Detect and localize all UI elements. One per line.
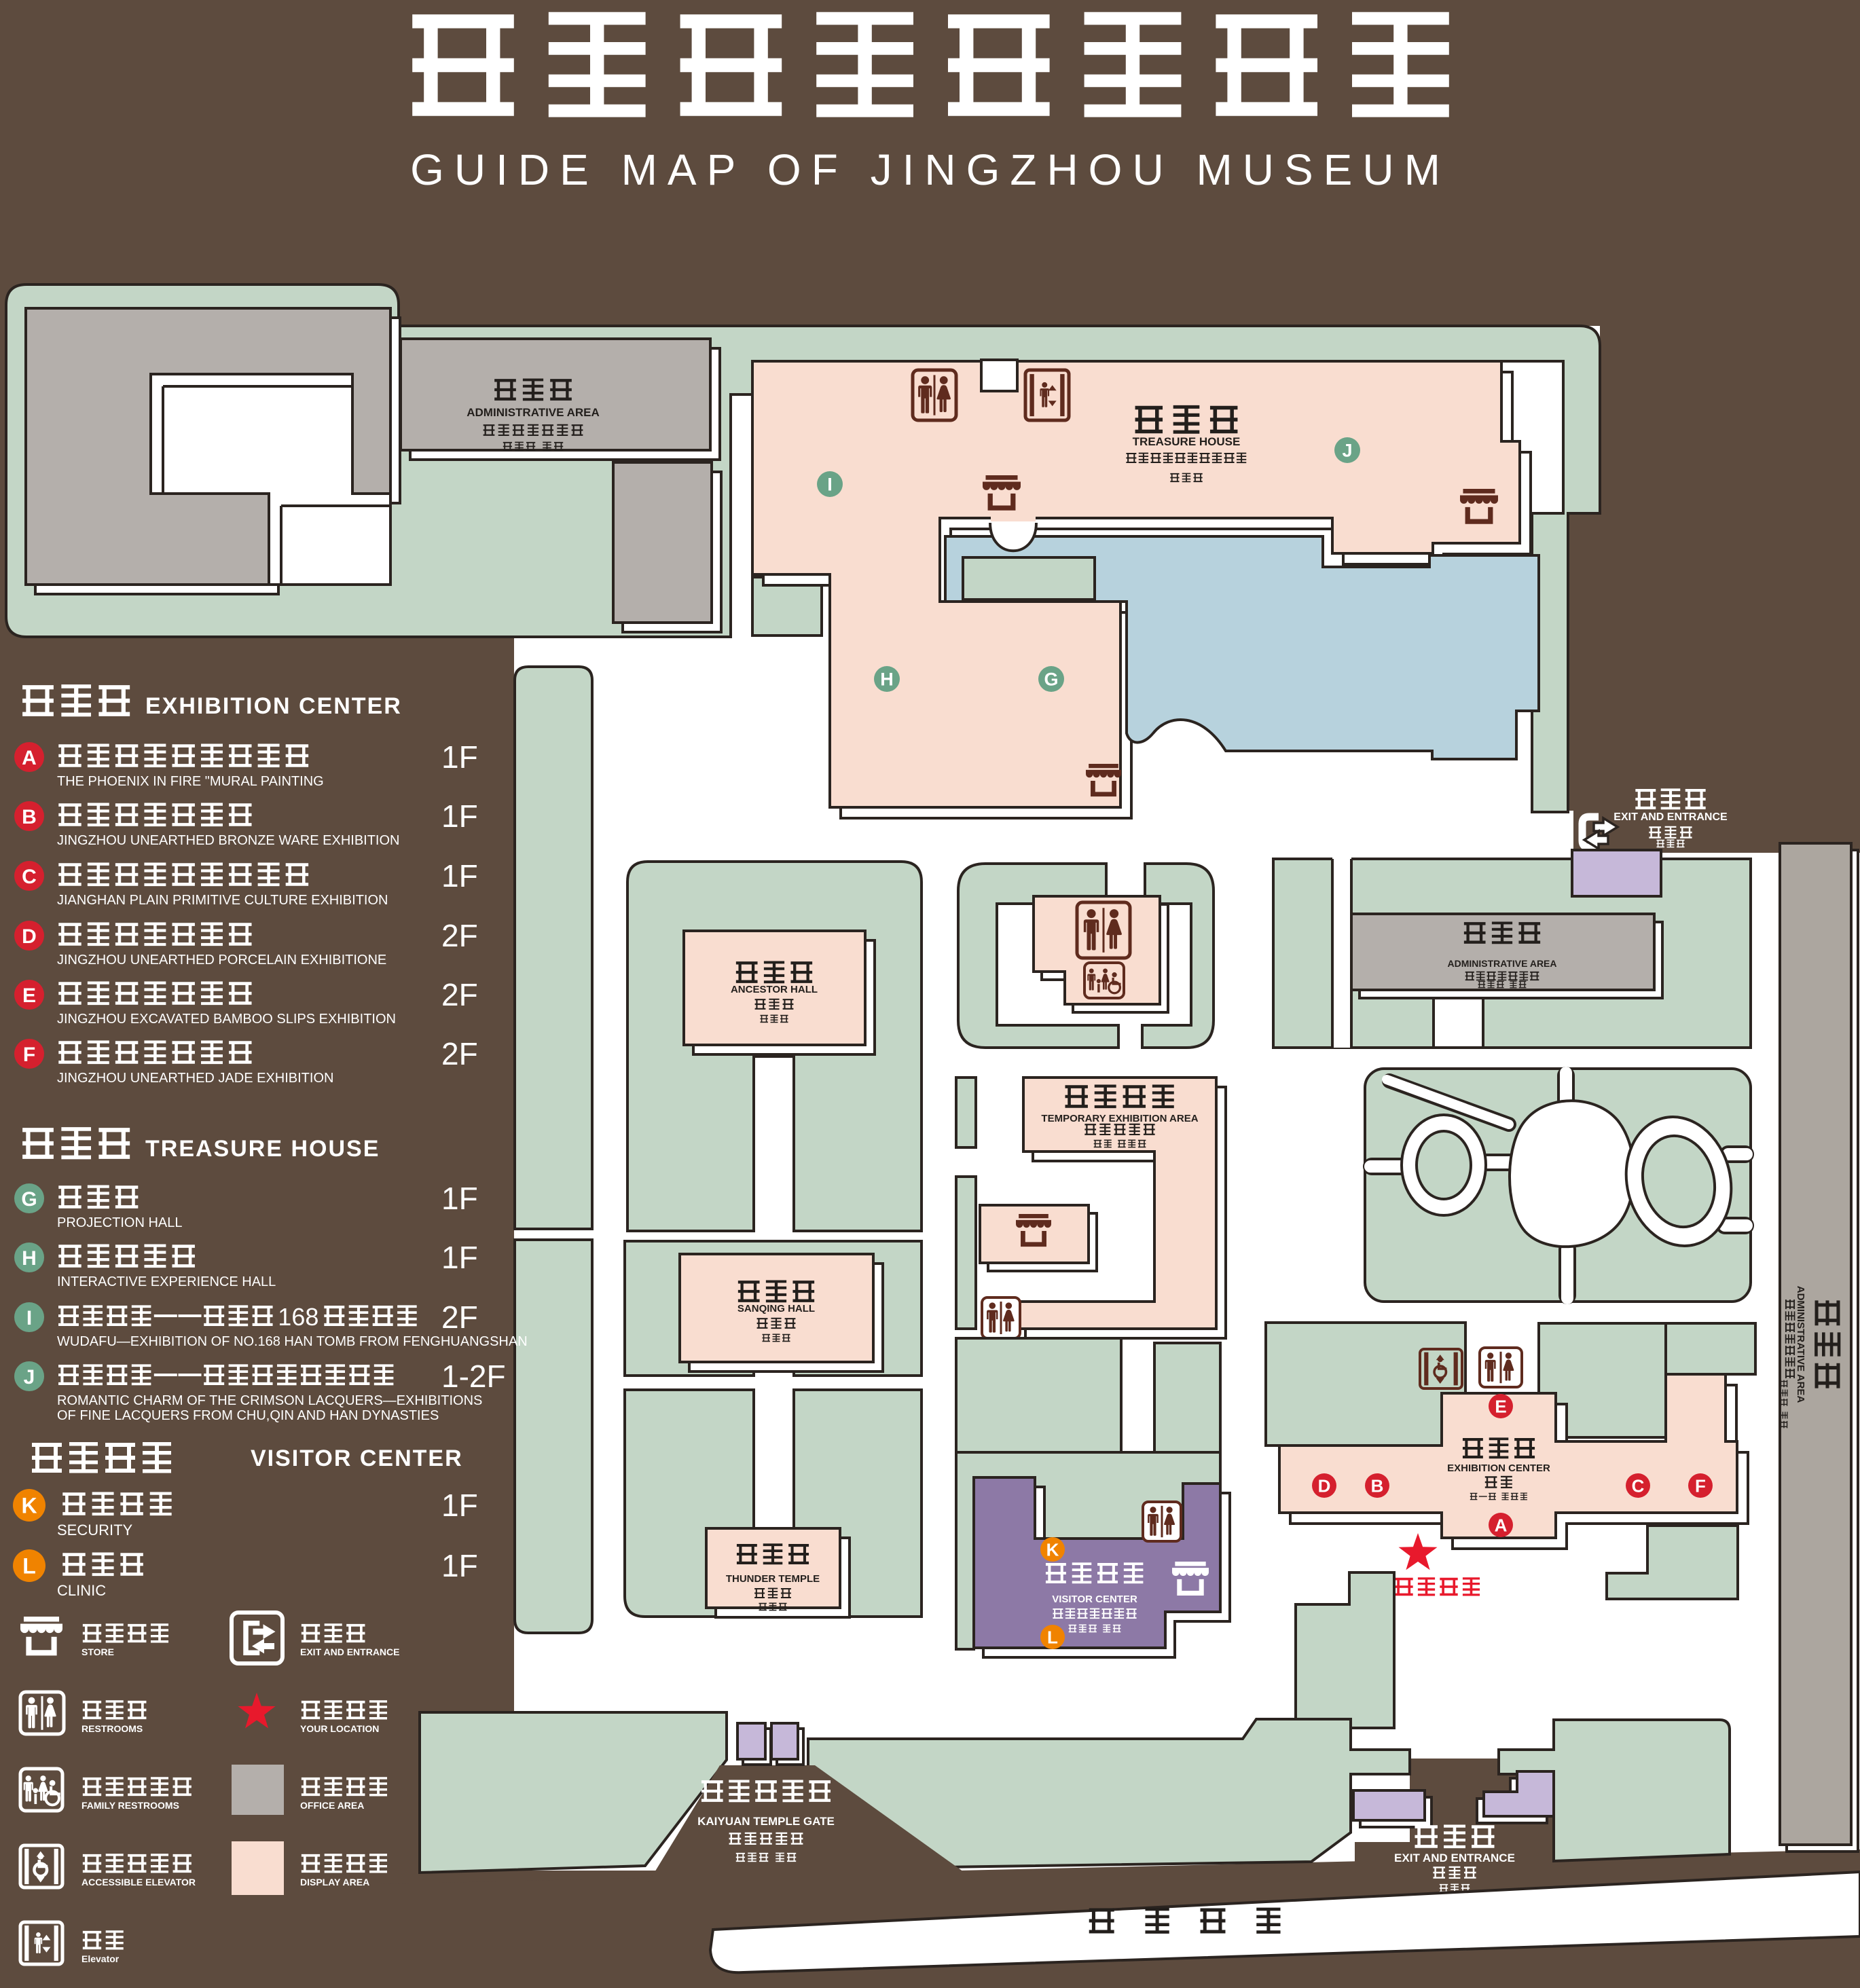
svg-text:RESTROOMS: RESTROOMS (81, 1723, 143, 1734)
svg-text:K: K (21, 1494, 37, 1518)
svg-text:JINGZHOU UNEARTHED PORCELAIN E: JINGZHOU UNEARTHED PORCELAIN EXHIBITIONE (57, 953, 386, 968)
svg-text:I: I (827, 475, 833, 495)
svg-text:G: G (21, 1188, 37, 1211)
svg-text:TEMPORARY EXHIBITION AREA: TEMPORARY EXHIBITION AREA (1041, 1113, 1198, 1124)
svg-text:TREASURE HOUSE: TREASURE HOUSE (1133, 435, 1241, 448)
svg-text:2F: 2F (441, 918, 478, 953)
svg-text:YOUR LOCATION: YOUR LOCATION (300, 1723, 379, 1734)
svg-text:ADMINISTRATIVE AREA: ADMINISTRATIVE AREA (467, 406, 600, 419)
svg-text:WUDAFU—EXHIBITION OF NO.168 HA: WUDAFU—EXHIBITION OF NO.168 HAN TOMB FRO… (57, 1334, 528, 1349)
svg-text:1F: 1F (441, 1488, 478, 1523)
svg-text:E: E (22, 984, 36, 1007)
svg-text:J: J (24, 1366, 35, 1388)
svg-text:EXIT AND ENTRANCE: EXIT AND ENTRANCE (300, 1646, 400, 1657)
svg-text:2F: 2F (441, 1300, 478, 1335)
svg-text:OFFICE AREA: OFFICE AREA (300, 1800, 364, 1811)
svg-text:EXHIBITION CENTER: EXHIBITION CENTER (145, 693, 402, 719)
svg-text:EXHIBITION CENTER: EXHIBITION CENTER (1447, 1462, 1550, 1474)
svg-text:TREASURE HOUSE: TREASURE HOUSE (145, 1136, 380, 1162)
svg-text:1-2F: 1-2F (441, 1359, 506, 1394)
svg-text:I: I (26, 1307, 32, 1329)
svg-text:1F: 1F (441, 858, 478, 894)
svg-text:H: H (880, 669, 894, 690)
svg-text:CLINIC: CLINIC (57, 1582, 106, 1599)
svg-text:VISITOR CENTER: VISITOR CENTER (1052, 1594, 1137, 1605)
svg-text:1F: 1F (441, 798, 478, 834)
svg-text:VISITOR CENTER: VISITOR CENTER (251, 1446, 463, 1471)
svg-text:L: L (22, 1554, 36, 1579)
svg-text:EXIT AND ENTRANCE: EXIT AND ENTRANCE (1394, 1852, 1515, 1864)
svg-text:K: K (1046, 1539, 1059, 1560)
svg-text:GUIDE MAP OF JINGZHOU MUSEUM: GUIDE MAP OF JINGZHOU MUSEUM (410, 145, 1451, 194)
svg-text:INTERACTIVE EXPERIENCE HALL: INTERACTIVE EXPERIENCE HALL (57, 1274, 276, 1289)
svg-text:B: B (22, 806, 37, 828)
svg-text:THUNDER TEMPLE: THUNDER TEMPLE (726, 1573, 820, 1585)
svg-text:ADMINISTRATIVE AREA: ADMINISTRATIVE AREA (1448, 958, 1557, 969)
svg-text:ACCESSIBLE ELEVATOR: ACCESSIBLE ELEVATOR (81, 1877, 196, 1888)
svg-text:PROJECTION HALL: PROJECTION HALL (57, 1215, 182, 1230)
svg-text:JIANGHAN PLAIN PRIMITIVE CULTU: JIANGHAN PLAIN PRIMITIVE CULTURE EXHIBIT… (57, 893, 388, 908)
svg-text:C: C (22, 866, 37, 888)
svg-text:J: J (1342, 441, 1352, 461)
svg-text:C: C (1632, 1475, 1645, 1496)
svg-text:2F: 2F (441, 977, 478, 1012)
svg-text:2F: 2F (441, 1036, 478, 1071)
svg-text:F: F (1695, 1475, 1706, 1496)
svg-text:JINGZHOU UNEARTHED BRONZE WARE: JINGZHOU UNEARTHED BRONZE WARE EXHIBITIO… (57, 833, 399, 848)
svg-text:SECURITY: SECURITY (57, 1522, 133, 1539)
svg-text:A: A (22, 747, 37, 769)
svg-text:1F: 1F (441, 739, 478, 775)
svg-text:1F: 1F (441, 1240, 478, 1275)
svg-text:E: E (1495, 1396, 1506, 1416)
svg-text:OF FINE LACQUERS FROM CHU,QIN: OF FINE LACQUERS FROM CHU,QIN AND HAN DY… (57, 1408, 439, 1423)
svg-text:168: 168 (278, 1303, 318, 1331)
svg-text:SANQING HALL: SANQING HALL (737, 1303, 815, 1314)
svg-text:STORE: STORE (81, 1646, 114, 1657)
svg-text:JINGZHOU EXCAVATED BAMBOO SLIP: JINGZHOU EXCAVATED BAMBOO SLIPS EXHIBITI… (57, 1012, 396, 1027)
svg-text:FAMILY RESTROOMS: FAMILY RESTROOMS (81, 1800, 179, 1811)
svg-text:F: F (23, 1044, 35, 1066)
svg-text:ADMINISTRATIVE AREA: ADMINISTRATIVE AREA (1795, 1286, 1806, 1403)
svg-text:KAIYUAN TEMPLE GATE: KAIYUAN TEMPLE GATE (697, 1815, 835, 1828)
svg-text:ANCESTOR HALL: ANCESTOR HALL (731, 984, 818, 995)
svg-text:EXIT AND ENTRANCE: EXIT AND ENTRANCE (1613, 811, 1728, 823)
svg-text:A: A (1495, 1515, 1508, 1535)
svg-text:B: B (1371, 1475, 1384, 1496)
svg-text:Elevator: Elevator (81, 1953, 120, 1964)
svg-text:ROMANTIC CHARM OF THE CRIMSON: ROMANTIC CHARM OF THE CRIMSON LACQUERS—E… (57, 1393, 482, 1408)
svg-text:H: H (22, 1247, 37, 1270)
svg-text:D: D (1318, 1475, 1331, 1496)
svg-text:1F: 1F (441, 1548, 478, 1583)
svg-text:THE PHOENIX IN FIRE "MURAL PAI: THE PHOENIX IN FIRE "MURAL PAINTING (57, 774, 324, 789)
svg-text:G: G (1044, 669, 1058, 690)
svg-text:DISPLAY AREA: DISPLAY AREA (300, 1877, 369, 1888)
svg-text:D: D (22, 925, 37, 948)
svg-text:JINGZHOU UNEARTHED JADE EXHIBI: JINGZHOU UNEARTHED JADE EXHIBITION (57, 1071, 333, 1086)
svg-text:1F: 1F (441, 1181, 478, 1216)
svg-text:L: L (1047, 1627, 1058, 1647)
